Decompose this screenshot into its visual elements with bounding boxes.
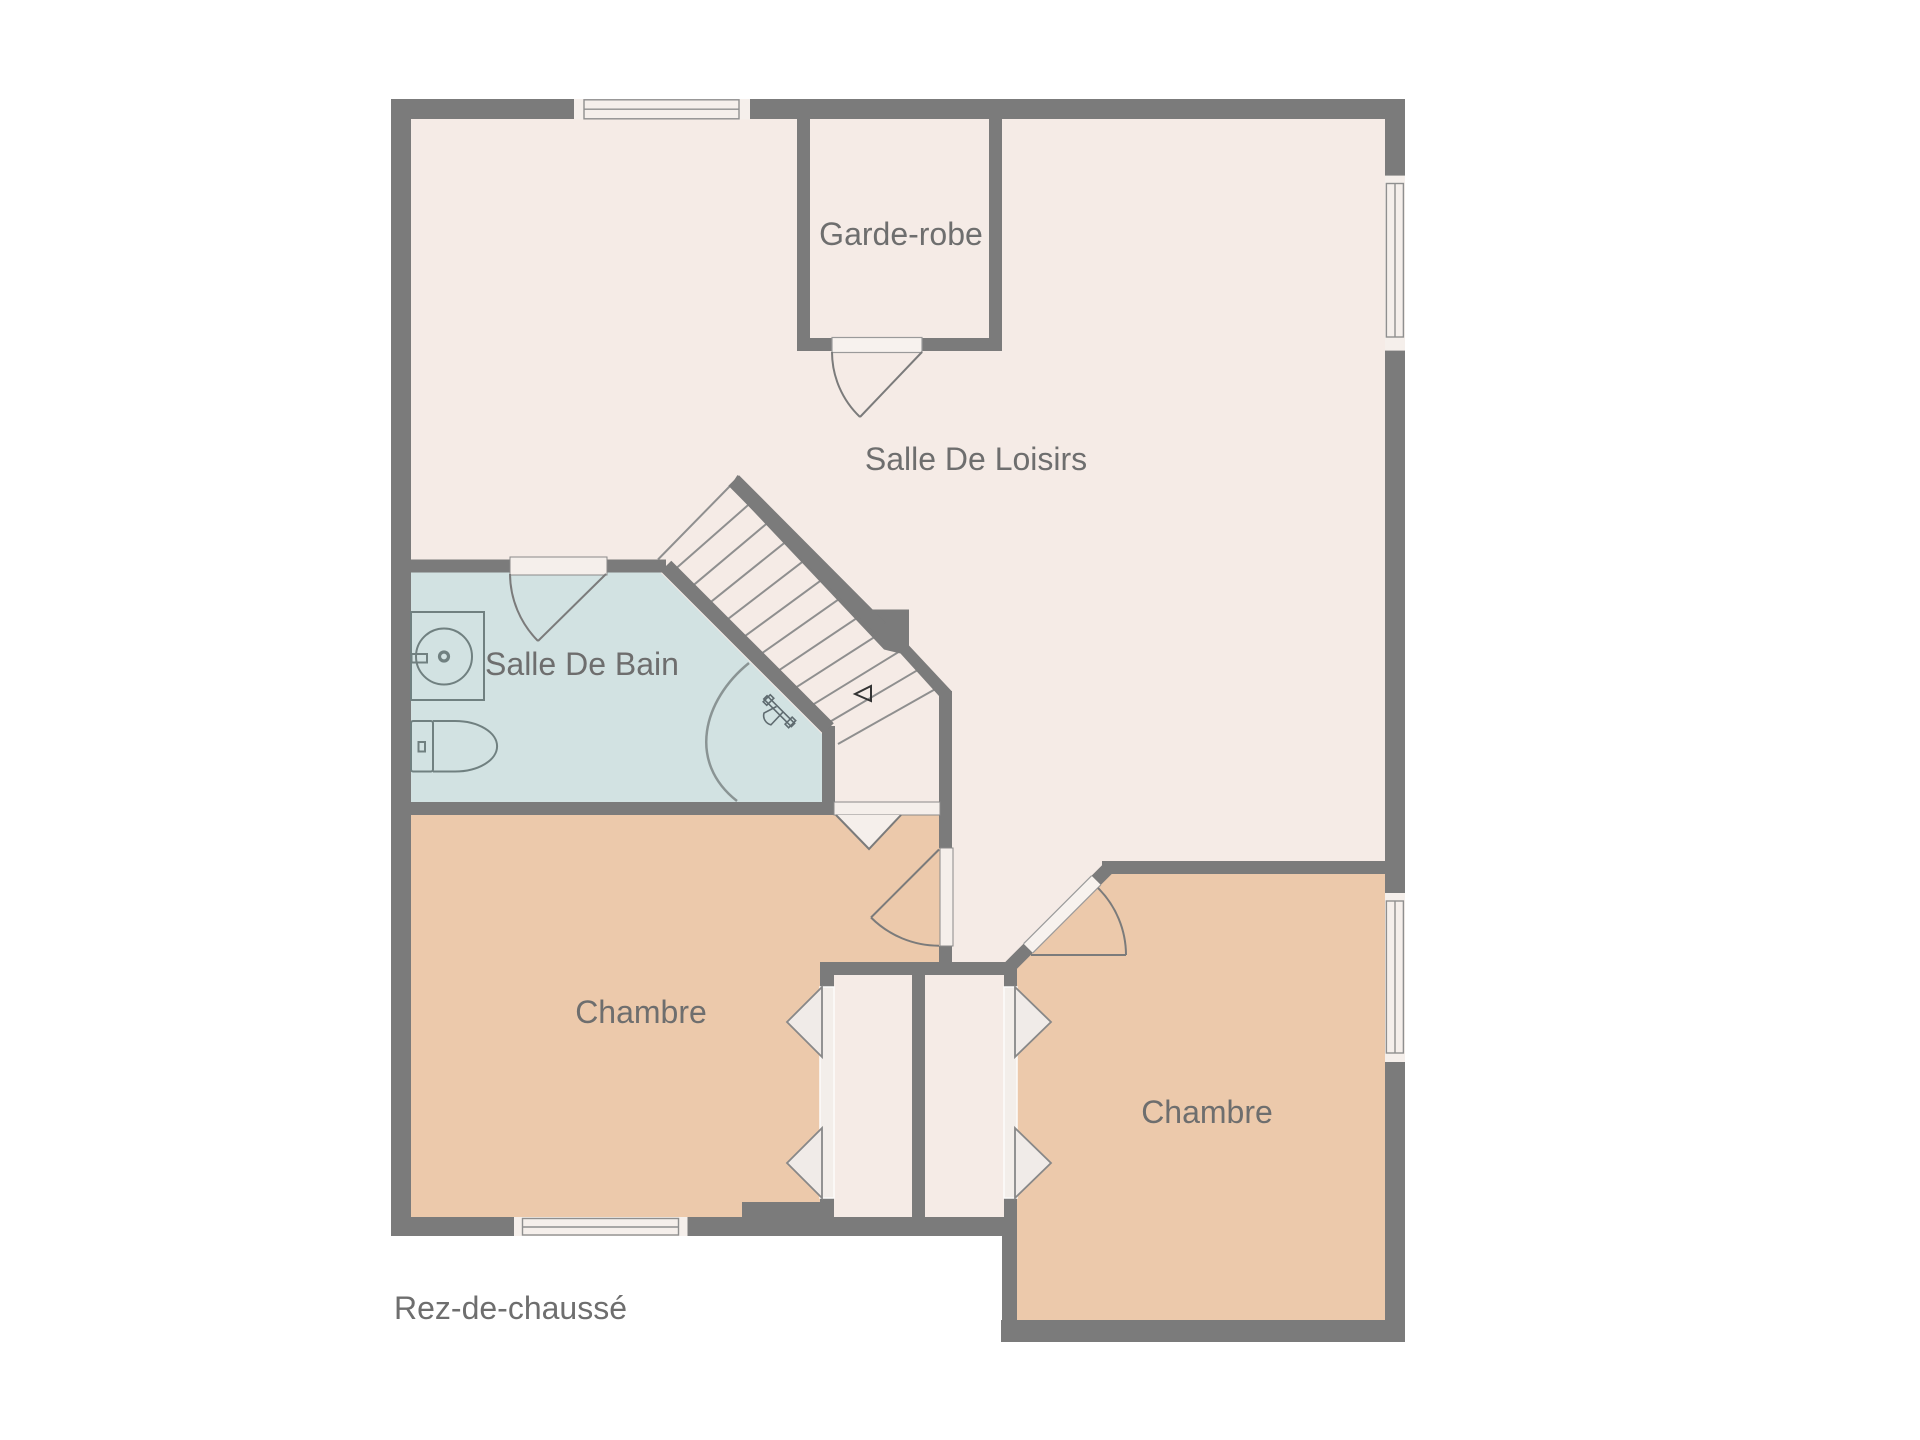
svg-text:Chambre: Chambre (575, 994, 707, 1030)
svg-text:Garde-robe: Garde-robe (819, 216, 983, 252)
svg-text:Rez-de-chaussé: Rez-de-chaussé (394, 1290, 627, 1326)
svg-text:Salle De Bain: Salle De Bain (485, 646, 679, 682)
svg-text:Salle De Loisirs: Salle De Loisirs (865, 441, 1087, 477)
svg-text:Chambre: Chambre (1141, 1094, 1273, 1130)
